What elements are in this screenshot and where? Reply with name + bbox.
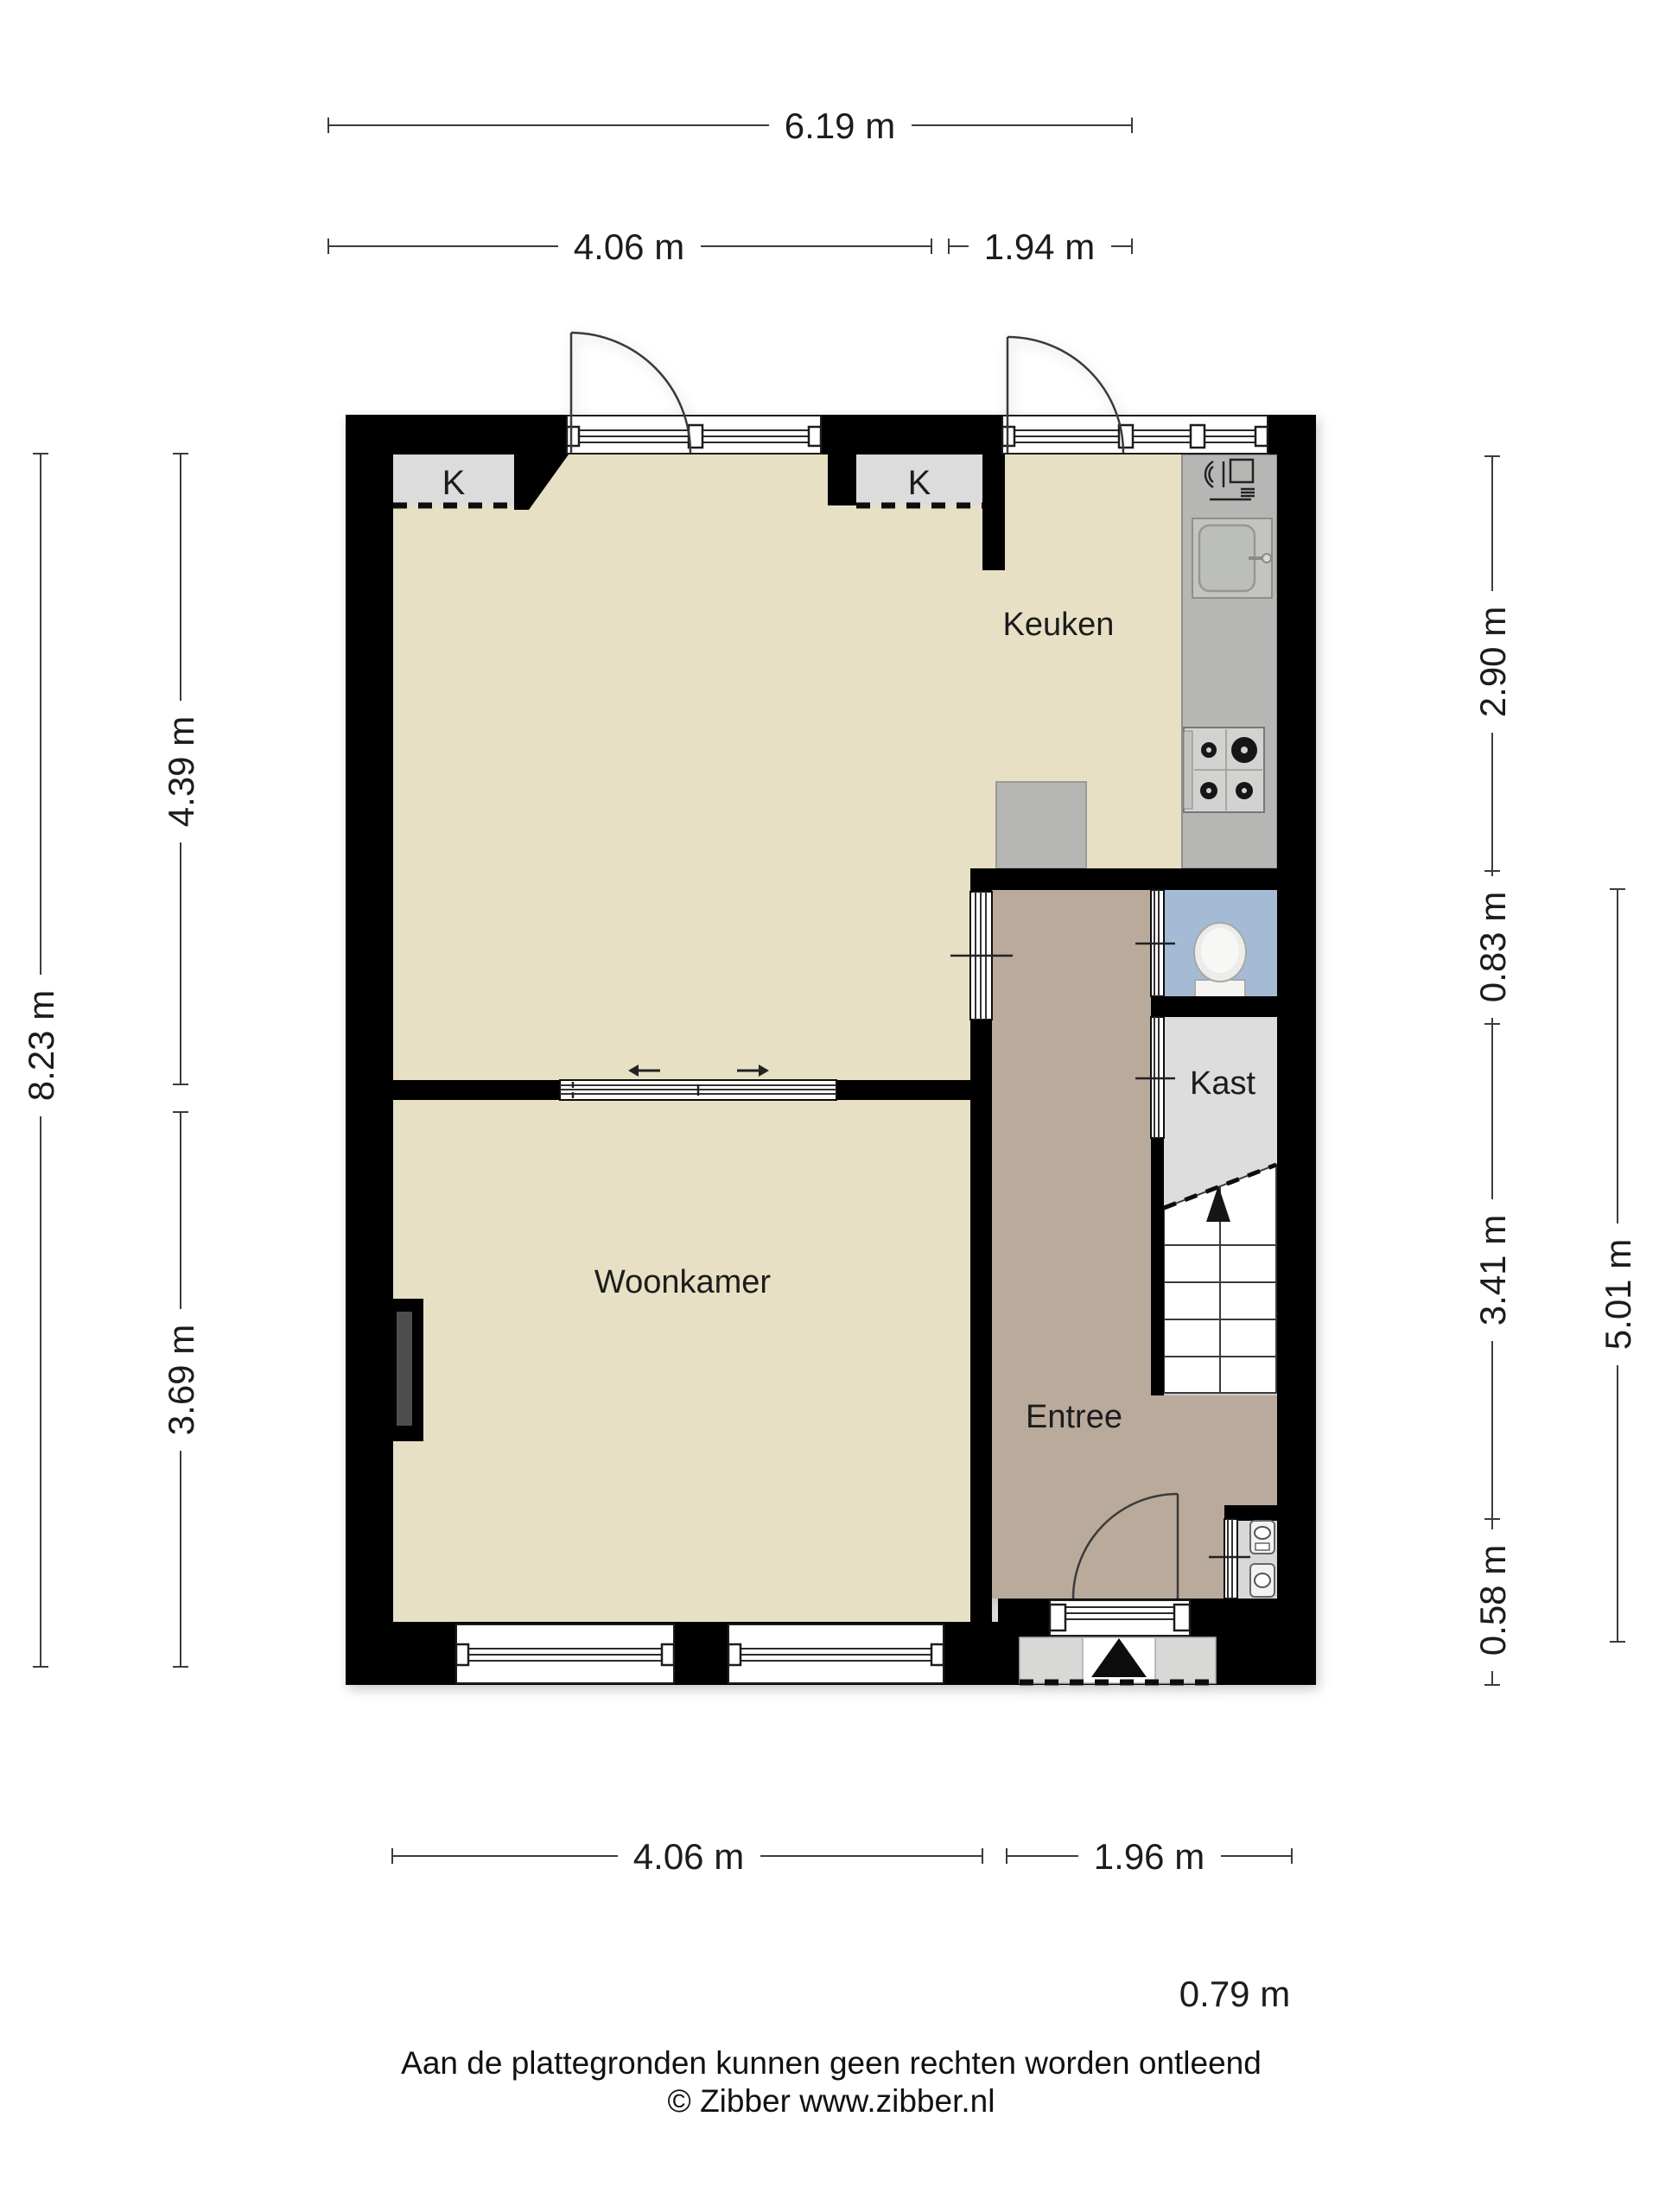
svg-text:3.41 m: 3.41 m <box>1472 1215 1513 1325</box>
window-mullion <box>1191 425 1205 448</box>
svg-text:1.94 m: 1.94 m <box>984 226 1095 267</box>
svg-text:3.69 m: 3.69 m <box>161 1325 201 1435</box>
kitchen-block <box>996 782 1086 868</box>
svg-text:4.06 m: 4.06 m <box>574 226 684 267</box>
stove-icon <box>1184 728 1264 812</box>
footer-disclaimer: Aan de plattegronden kunnen geen rechten… <box>401 2045 1262 2081</box>
dim-right-meterkast: 0.58 m <box>1469 1519 1516 1685</box>
dim-bottom-left: 4.06 m <box>392 1833 982 1879</box>
toilet-icon <box>1194 923 1246 998</box>
dim-right-total: 5.01 m <box>1594 889 1641 1642</box>
dim-top-right: 1.94 m <box>949 223 1132 270</box>
svg-text:4.06 m: 4.06 m <box>633 1836 744 1877</box>
svg-text:0.83 m: 0.83 m <box>1472 892 1513 1002</box>
svg-text:6.19 m: 6.19 m <box>785 105 895 146</box>
back-window-door-right <box>1002 337 1268 454</box>
room-woonkamer-floor <box>393 454 970 1622</box>
entrance-porch <box>1020 1637 1216 1683</box>
sink-icon <box>1192 518 1272 598</box>
room-label-kast: Kast <box>1190 1065 1255 1102</box>
svg-text:0.79 m: 0.79 m <box>1179 1974 1290 2014</box>
footer: Aan de plattegronden kunnen geen rechten… <box>401 2045 1262 2119</box>
closet-k-right: K <box>856 454 982 505</box>
floorplan-page: K K <box>0 0 1659 2212</box>
dim-right-hal: 3.41 m <box>1469 1024 1516 1519</box>
back-window-door-left <box>567 333 821 454</box>
fireplace-chimney <box>393 1299 423 1441</box>
svg-text:2.90 m: 2.90 m <box>1472 607 1513 717</box>
dim-left-upper: 4.39 m <box>157 454 204 1084</box>
dim-porch-width: 0.79 m <box>1179 1974 1290 2014</box>
svg-text:0.58 m: 0.58 m <box>1472 1545 1513 1656</box>
room-label-entree: Entree <box>1026 1399 1122 1435</box>
room-entree-floor <box>992 890 1151 1599</box>
room-label-woonkamer: Woonkamer <box>594 1264 772 1300</box>
building: K K <box>346 333 1316 1685</box>
dim-top-total: 6.19 m <box>328 102 1132 149</box>
closet-k-left: K <box>393 454 514 505</box>
svg-text:5.01 m: 5.01 m <box>1598 1239 1638 1350</box>
dim-right-keuken: 2.90 m <box>1469 456 1516 871</box>
dim-left-lower: 3.69 m <box>157 1112 204 1667</box>
floorplan-svg: K K <box>0 0 1659 2212</box>
dim-bottom-right: 1.96 m <box>1007 1833 1292 1879</box>
front-window-left <box>456 1624 674 1683</box>
dim-right-toilet: 0.83 m <box>1469 871 1516 1024</box>
svg-text:1.96 m: 1.96 m <box>1094 1836 1205 1877</box>
svg-text:8.23 m: 8.23 m <box>21 990 61 1101</box>
front-window-right <box>728 1624 944 1683</box>
dim-top-left: 4.06 m <box>328 223 931 270</box>
dim-left-total: 8.23 m <box>17 454 64 1667</box>
svg-text:4.39 m: 4.39 m <box>161 716 201 827</box>
room-label-keuken: Keuken <box>1003 607 1115 643</box>
closet-k-right-label: K <box>908 464 931 502</box>
footer-copyright: © Zibber www.zibber.nl <box>668 2083 995 2119</box>
closet-k-left-label: K <box>442 464 466 502</box>
